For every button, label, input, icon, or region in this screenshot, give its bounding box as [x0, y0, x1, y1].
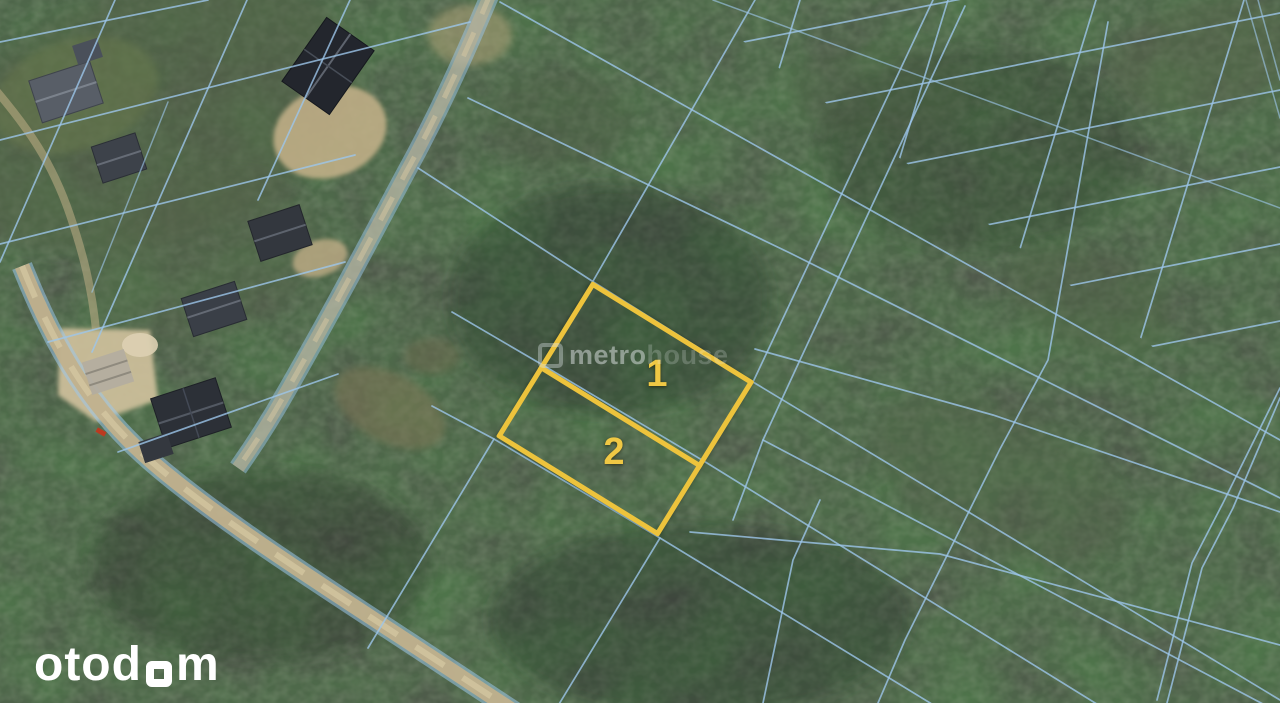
satellite-map-image: 1 2 metrohouse otod m: [0, 0, 1280, 703]
logo-text-left: otod: [34, 641, 142, 689]
parcel-2-label: 2: [603, 433, 624, 471]
otodom-square-icon: [146, 661, 172, 687]
logo-text-right: m: [176, 641, 220, 689]
parcel-1-label: 1: [646, 355, 667, 393]
otodom-logo: otod m: [34, 641, 220, 689]
